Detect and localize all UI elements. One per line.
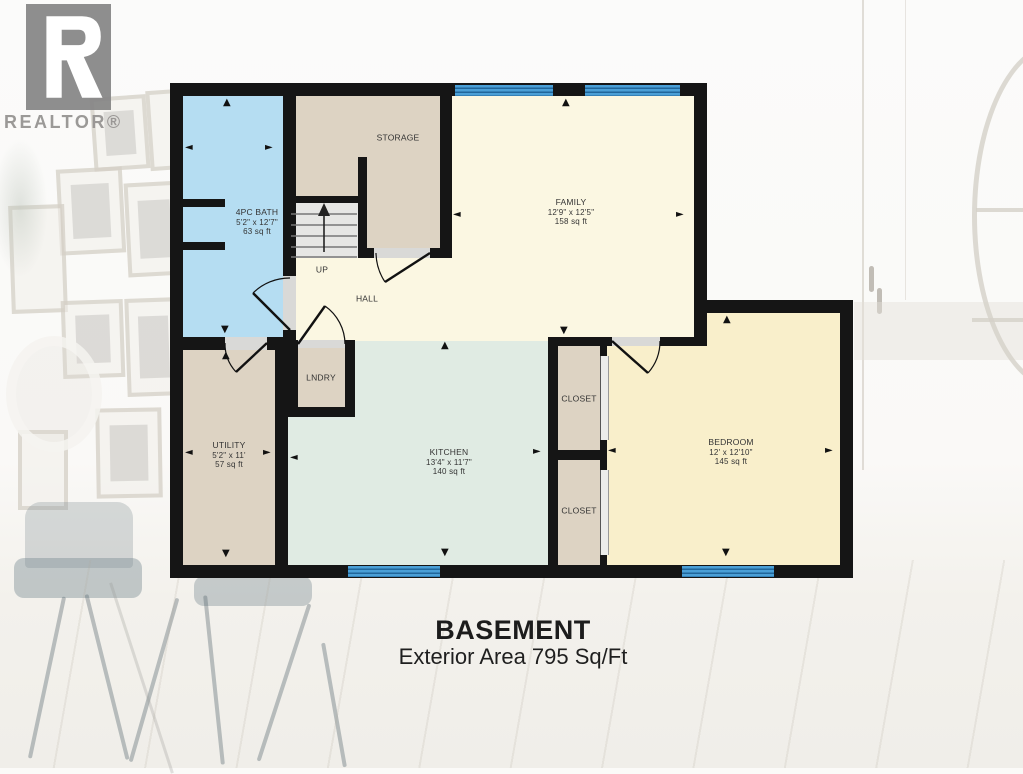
dimension-arrow: ◄ [185,448,193,458]
dimension-arrow: ▲ [223,98,231,108]
room-label-utility: UTILITY 5'2" x 11' 57 sq ft [212,441,246,470]
dimension-arrow: ▼ [441,548,449,558]
door-panel [612,341,648,373]
dimension-arrow: ◄ [185,143,193,153]
room-label-bath: 4PC BATH 5'2" x 12'7" 63 sq ft [236,208,279,237]
door-swing [253,278,290,293]
room-label-storage: STORAGE [377,133,420,143]
dimension-arrow: ▲ [723,315,731,325]
door-panel [253,293,290,330]
plan-title: BASEMENT [313,615,713,646]
dimension-arrow: ▲ [222,351,230,361]
dimension-arrow: ▲ [441,341,449,351]
dimension-arrow: ▼ [222,549,230,559]
dimension-arrow: ◄ [608,446,616,456]
dimension-arrow: ◄ [290,453,298,463]
dimension-arrow: ◄ [453,210,461,220]
dimension-arrow: ▼ [722,548,730,558]
dimension-arrow: ► [825,446,833,456]
dimension-arrow: ▲ [562,98,570,108]
room-label-closet-lower: CLOSET [561,506,596,516]
room-label-family: FAMILY 12'9" x 12'5" 158 sq ft [548,198,594,227]
door-swing [648,341,660,373]
dimension-arrow: ► [533,447,541,457]
room-label-laundry: LNDRY [306,373,336,383]
door-panel [385,253,430,282]
room-label-kitchen: KITCHEN 13'4" x 11'7" 140 sq ft [426,448,472,477]
stair-up-arrow [318,203,330,252]
dimension-arrow: ► [265,143,273,153]
stairs-up-label: UP [316,265,328,275]
door-panel [298,306,325,344]
door-swing [376,253,385,282]
dimension-arrow: ▼ [221,325,229,335]
plan-subtitle: Exterior Area 795 Sq/Ft [263,644,763,670]
door-panel [236,343,267,372]
room-label-hall: HALL [356,294,378,304]
dimension-arrow: ▼ [560,326,568,336]
dimension-arrow: ► [263,448,271,458]
dimension-arrow: ► [676,210,684,220]
door-swing [325,306,345,344]
room-label-closet-upper: CLOSET [561,394,596,404]
room-label-bedroom: BEDROOM 12' x 12'10" 145 sq ft [708,438,753,467]
